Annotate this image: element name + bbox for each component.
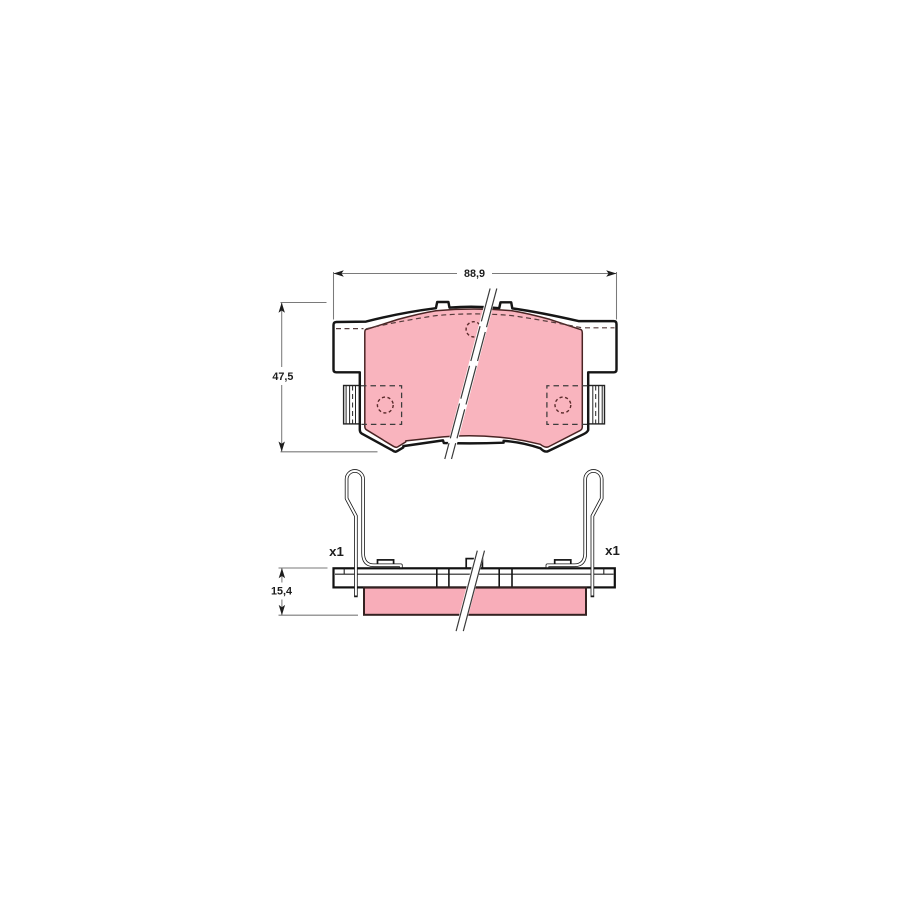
svg-text:47,5: 47,5 [272, 371, 293, 383]
svg-text:15,4: 15,4 [271, 586, 292, 598]
svg-text:x1: x1 [329, 544, 344, 559]
svg-text:x1: x1 [605, 543, 620, 558]
svg-text:88,9: 88,9 [464, 268, 485, 280]
